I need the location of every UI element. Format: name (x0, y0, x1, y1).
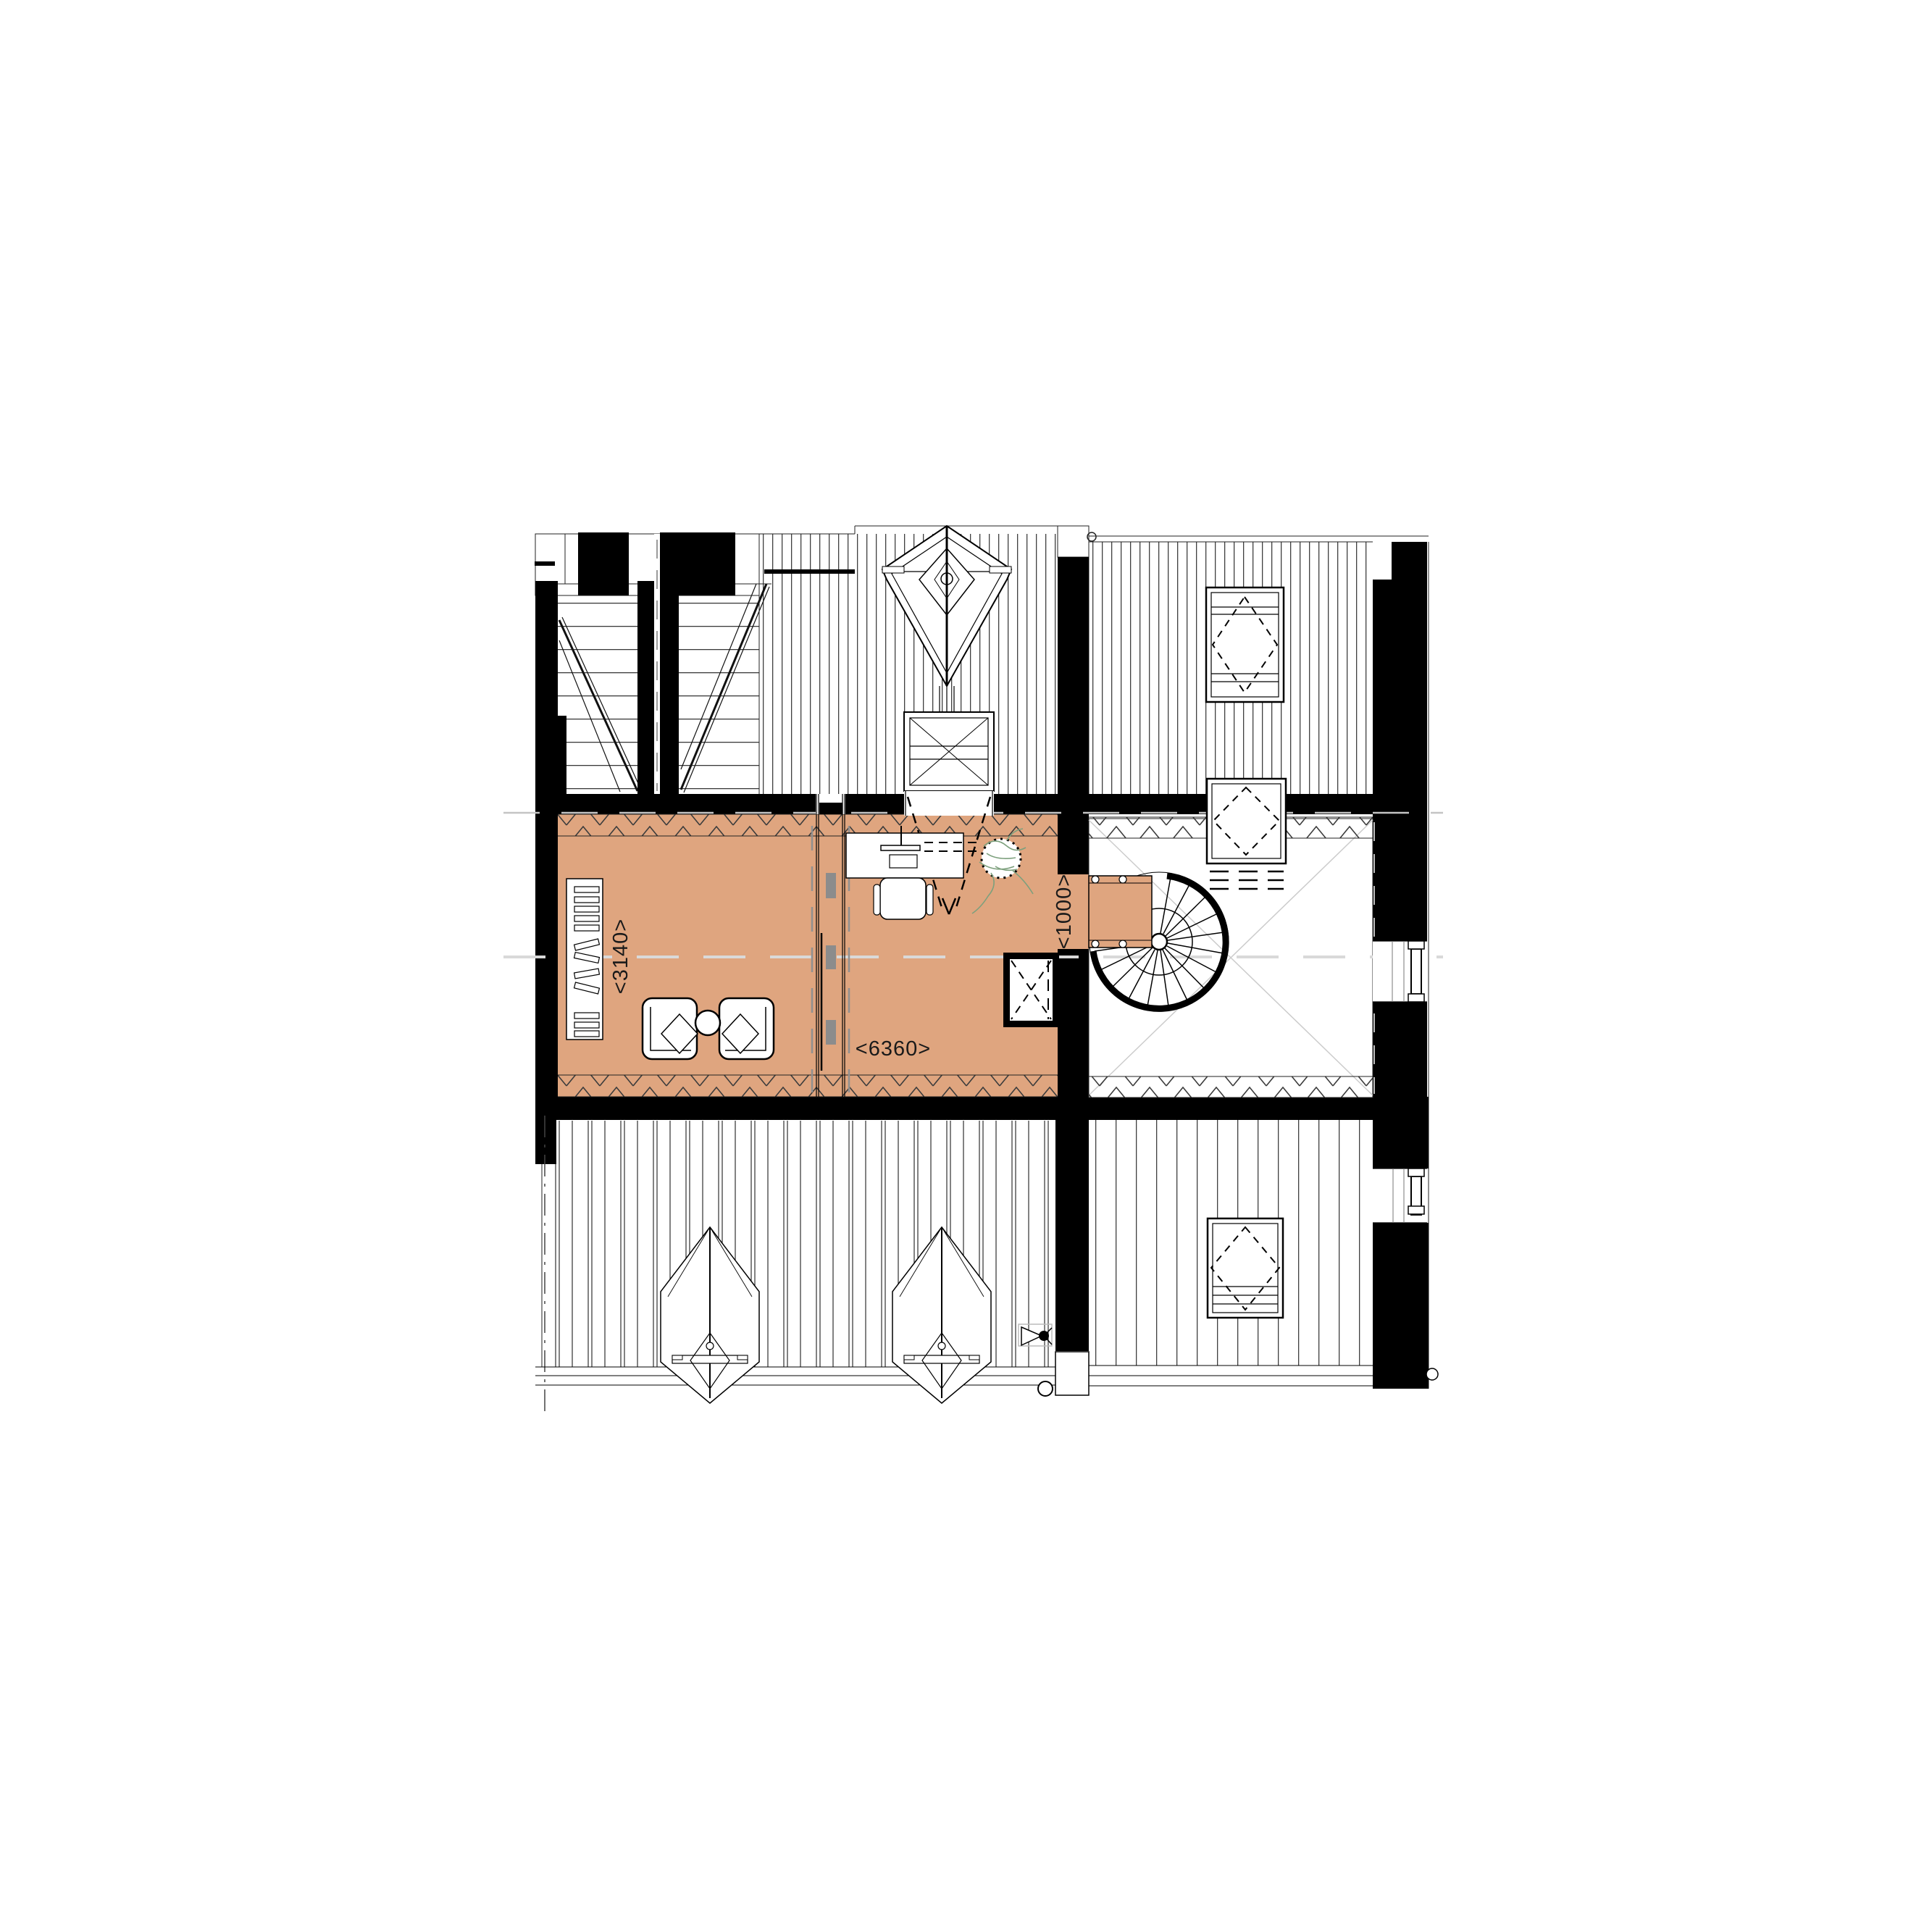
wall-right-top-block (1392, 542, 1427, 580)
window-landing-east (1373, 941, 1427, 1002)
armchair-right (719, 998, 774, 1059)
wall-right-lower-a (1373, 1120, 1429, 1168)
chimney-box (1055, 1352, 1089, 1395)
wall-divider-lower (1055, 1120, 1089, 1351)
wall-band-bottom (535, 1097, 1429, 1120)
desk-chair (874, 878, 933, 919)
wall-band-top-a (535, 794, 816, 814)
gutter-drain-icon (1038, 1381, 1053, 1396)
wall-band-top-d (1286, 794, 1375, 814)
wall-left-outer (535, 581, 558, 1097)
wall-corridor-lower (1058, 949, 1089, 1097)
wall-pier-1 (578, 532, 629, 595)
skylight-upper-right-2 (1207, 779, 1286, 889)
dim-label-6360: <6360> (856, 1037, 931, 1061)
wall-tick-center (764, 569, 855, 574)
wall-right-lower-b (1373, 1223, 1429, 1389)
dim-label-1000: <1000> (1053, 874, 1076, 949)
wall-right-upper (1373, 580, 1427, 794)
wall-corridor-upper (1058, 794, 1089, 874)
wall-band-top-b (845, 794, 904, 814)
insulation-zigzag-bottom (558, 1075, 1058, 1097)
wall-center-right (1058, 557, 1089, 794)
armchair-left (643, 998, 698, 1059)
window-lower-east (1373, 1168, 1427, 1223)
landing-zigzag-bottom (1089, 1076, 1373, 1097)
wall-left-lower-stub (535, 1120, 556, 1164)
floor-plan-page: <3140> <6360> <1000> (0, 0, 1932, 1932)
floor-plan-drawing: <3140> <6360> <1000> (0, 0, 1932, 1932)
door-leaf-3 (826, 1020, 836, 1045)
duct-shaft (1003, 953, 1059, 1027)
wall-right-mid-a (1373, 794, 1427, 941)
stair-platform (1089, 876, 1152, 948)
desk (846, 826, 977, 878)
door-leaf-2 (826, 945, 836, 969)
coffee-table (695, 1011, 720, 1035)
wall-tick-left (535, 561, 555, 566)
skylight-upper-right-1 (1206, 587, 1284, 702)
gutter-drain-right-icon (1426, 1368, 1438, 1380)
bookshelf (566, 879, 603, 1040)
wall-band-top-c (994, 794, 1207, 814)
door-leaf-1 (826, 873, 836, 898)
skylight-lower-right (1208, 1218, 1283, 1318)
insulation-zigzag-top (558, 814, 1058, 836)
dim-label-3140: <3140> (609, 919, 632, 994)
